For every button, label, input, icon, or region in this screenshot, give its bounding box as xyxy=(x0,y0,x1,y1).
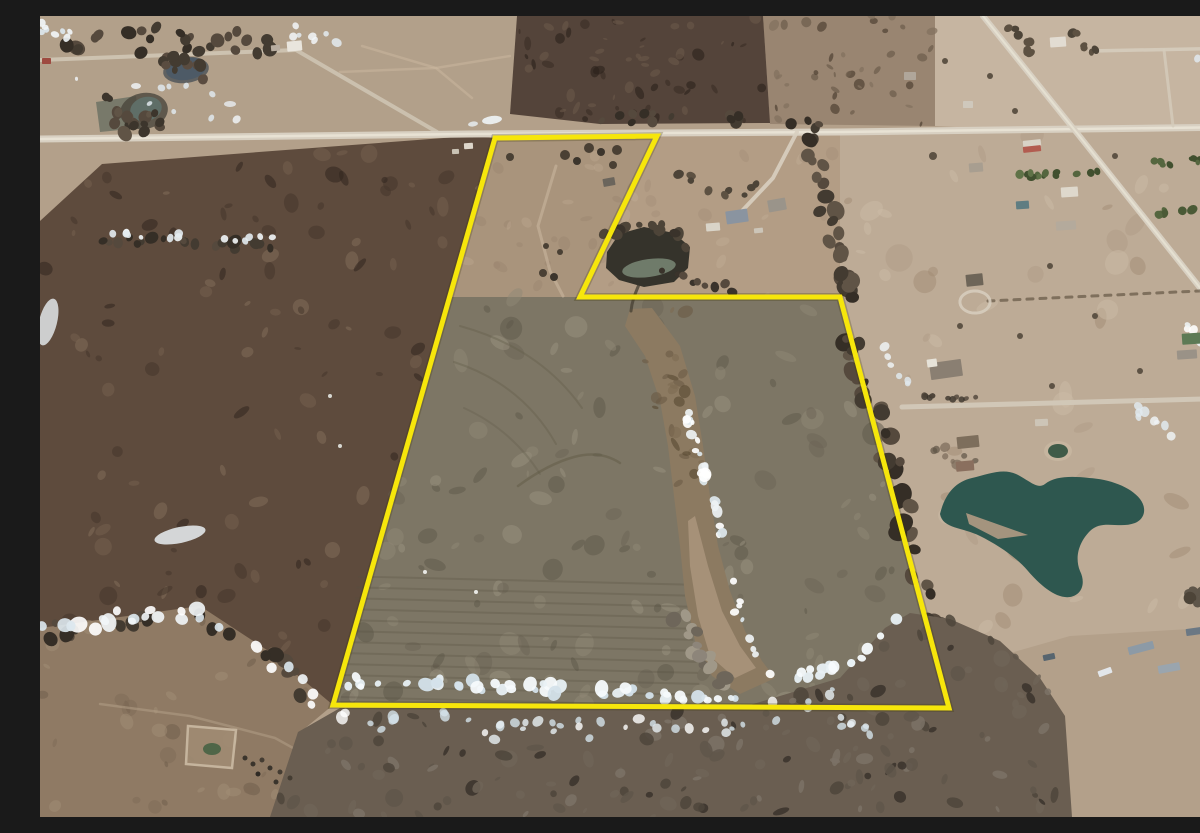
field-top-right-light xyxy=(935,16,1200,133)
pond-small-green xyxy=(1044,441,1072,461)
field-dark-north xyxy=(510,16,770,124)
corral-pond xyxy=(203,743,221,755)
aerial-photo: Aerial drone photograph of rural farmlan… xyxy=(40,16,1200,817)
aerial-photo-canvas xyxy=(40,16,1200,817)
